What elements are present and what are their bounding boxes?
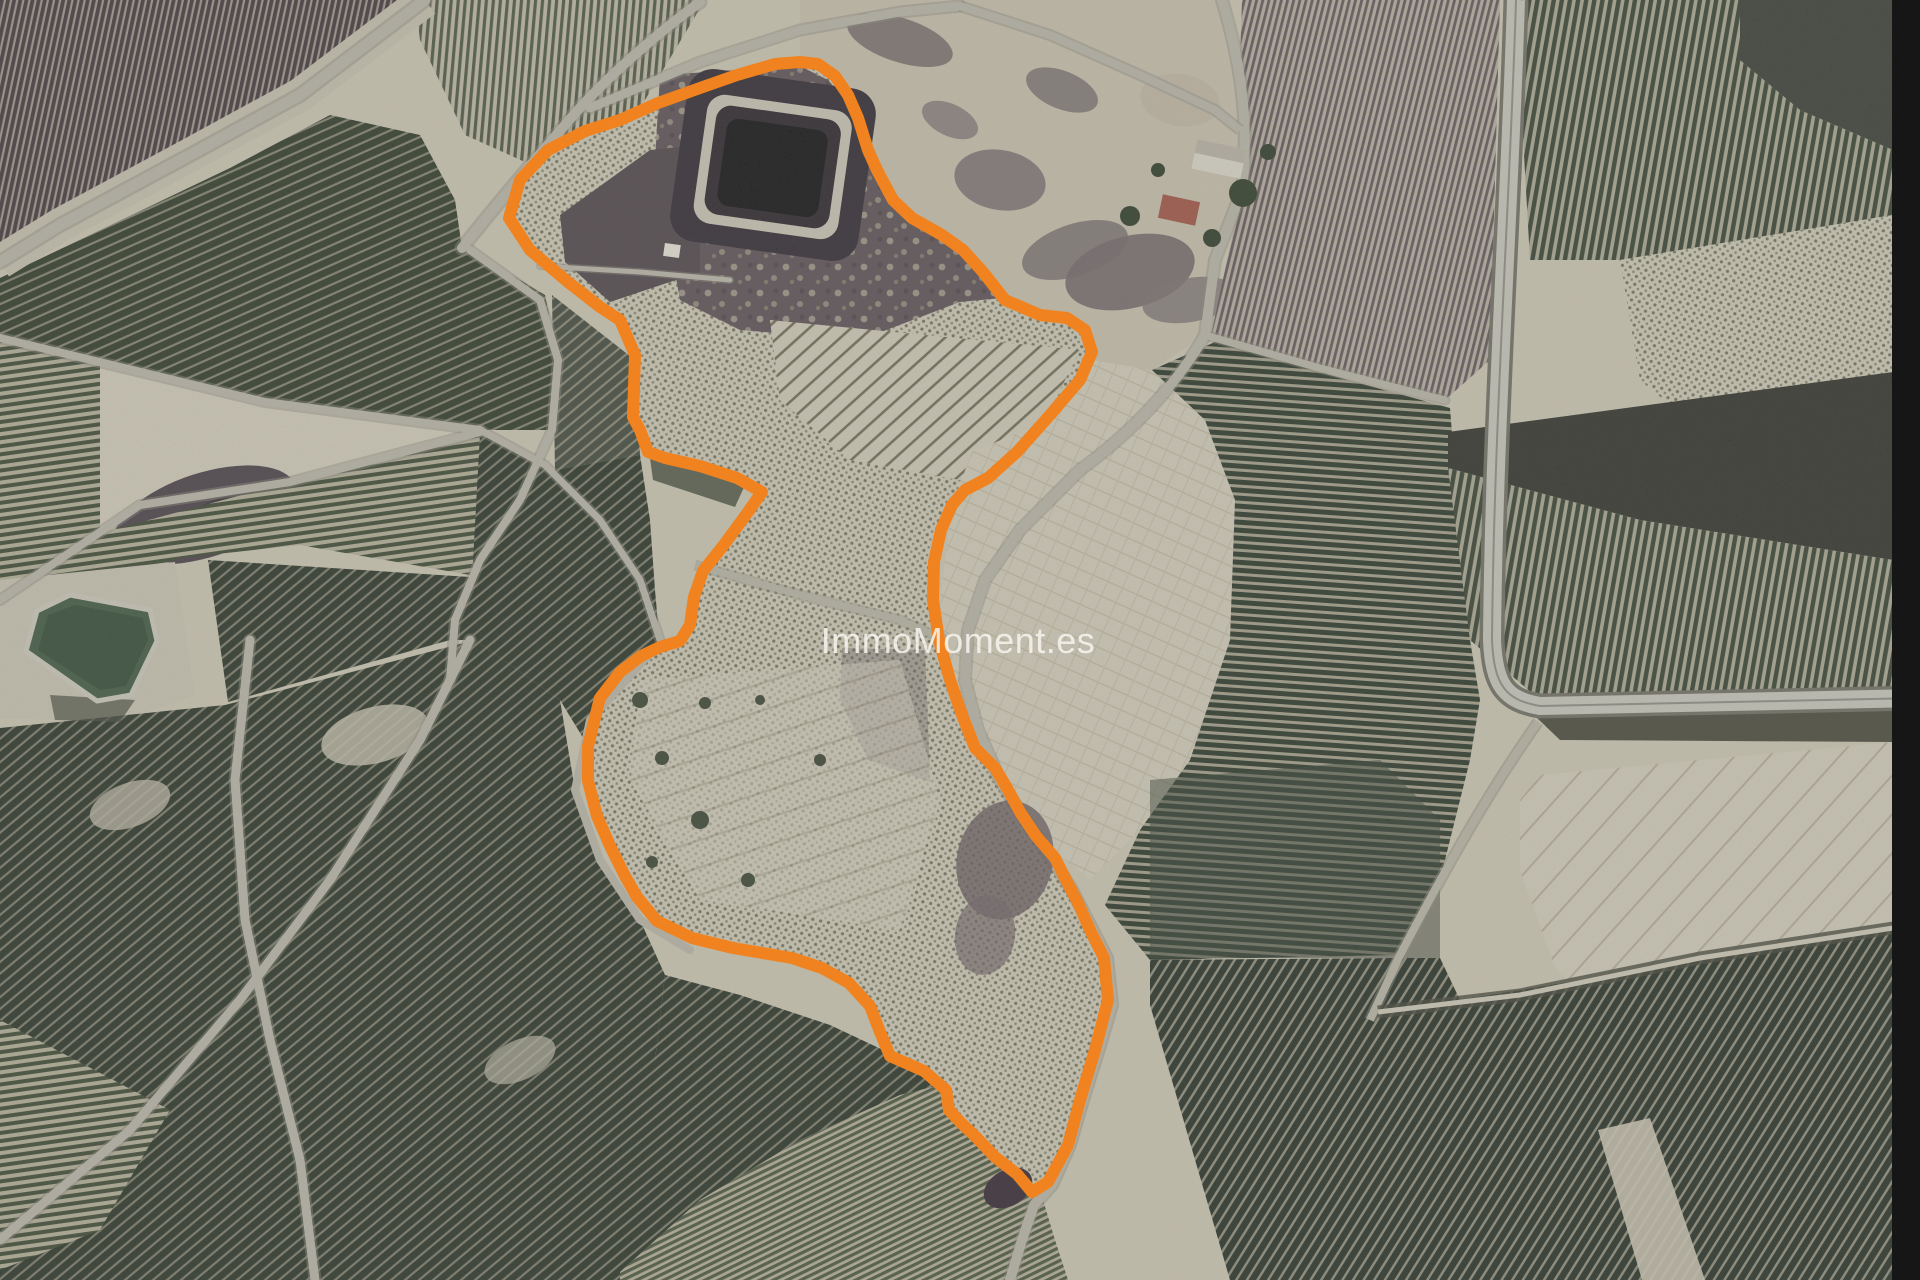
svg-text:ImmoMoment.es: ImmoMoment.es [821,620,1096,661]
